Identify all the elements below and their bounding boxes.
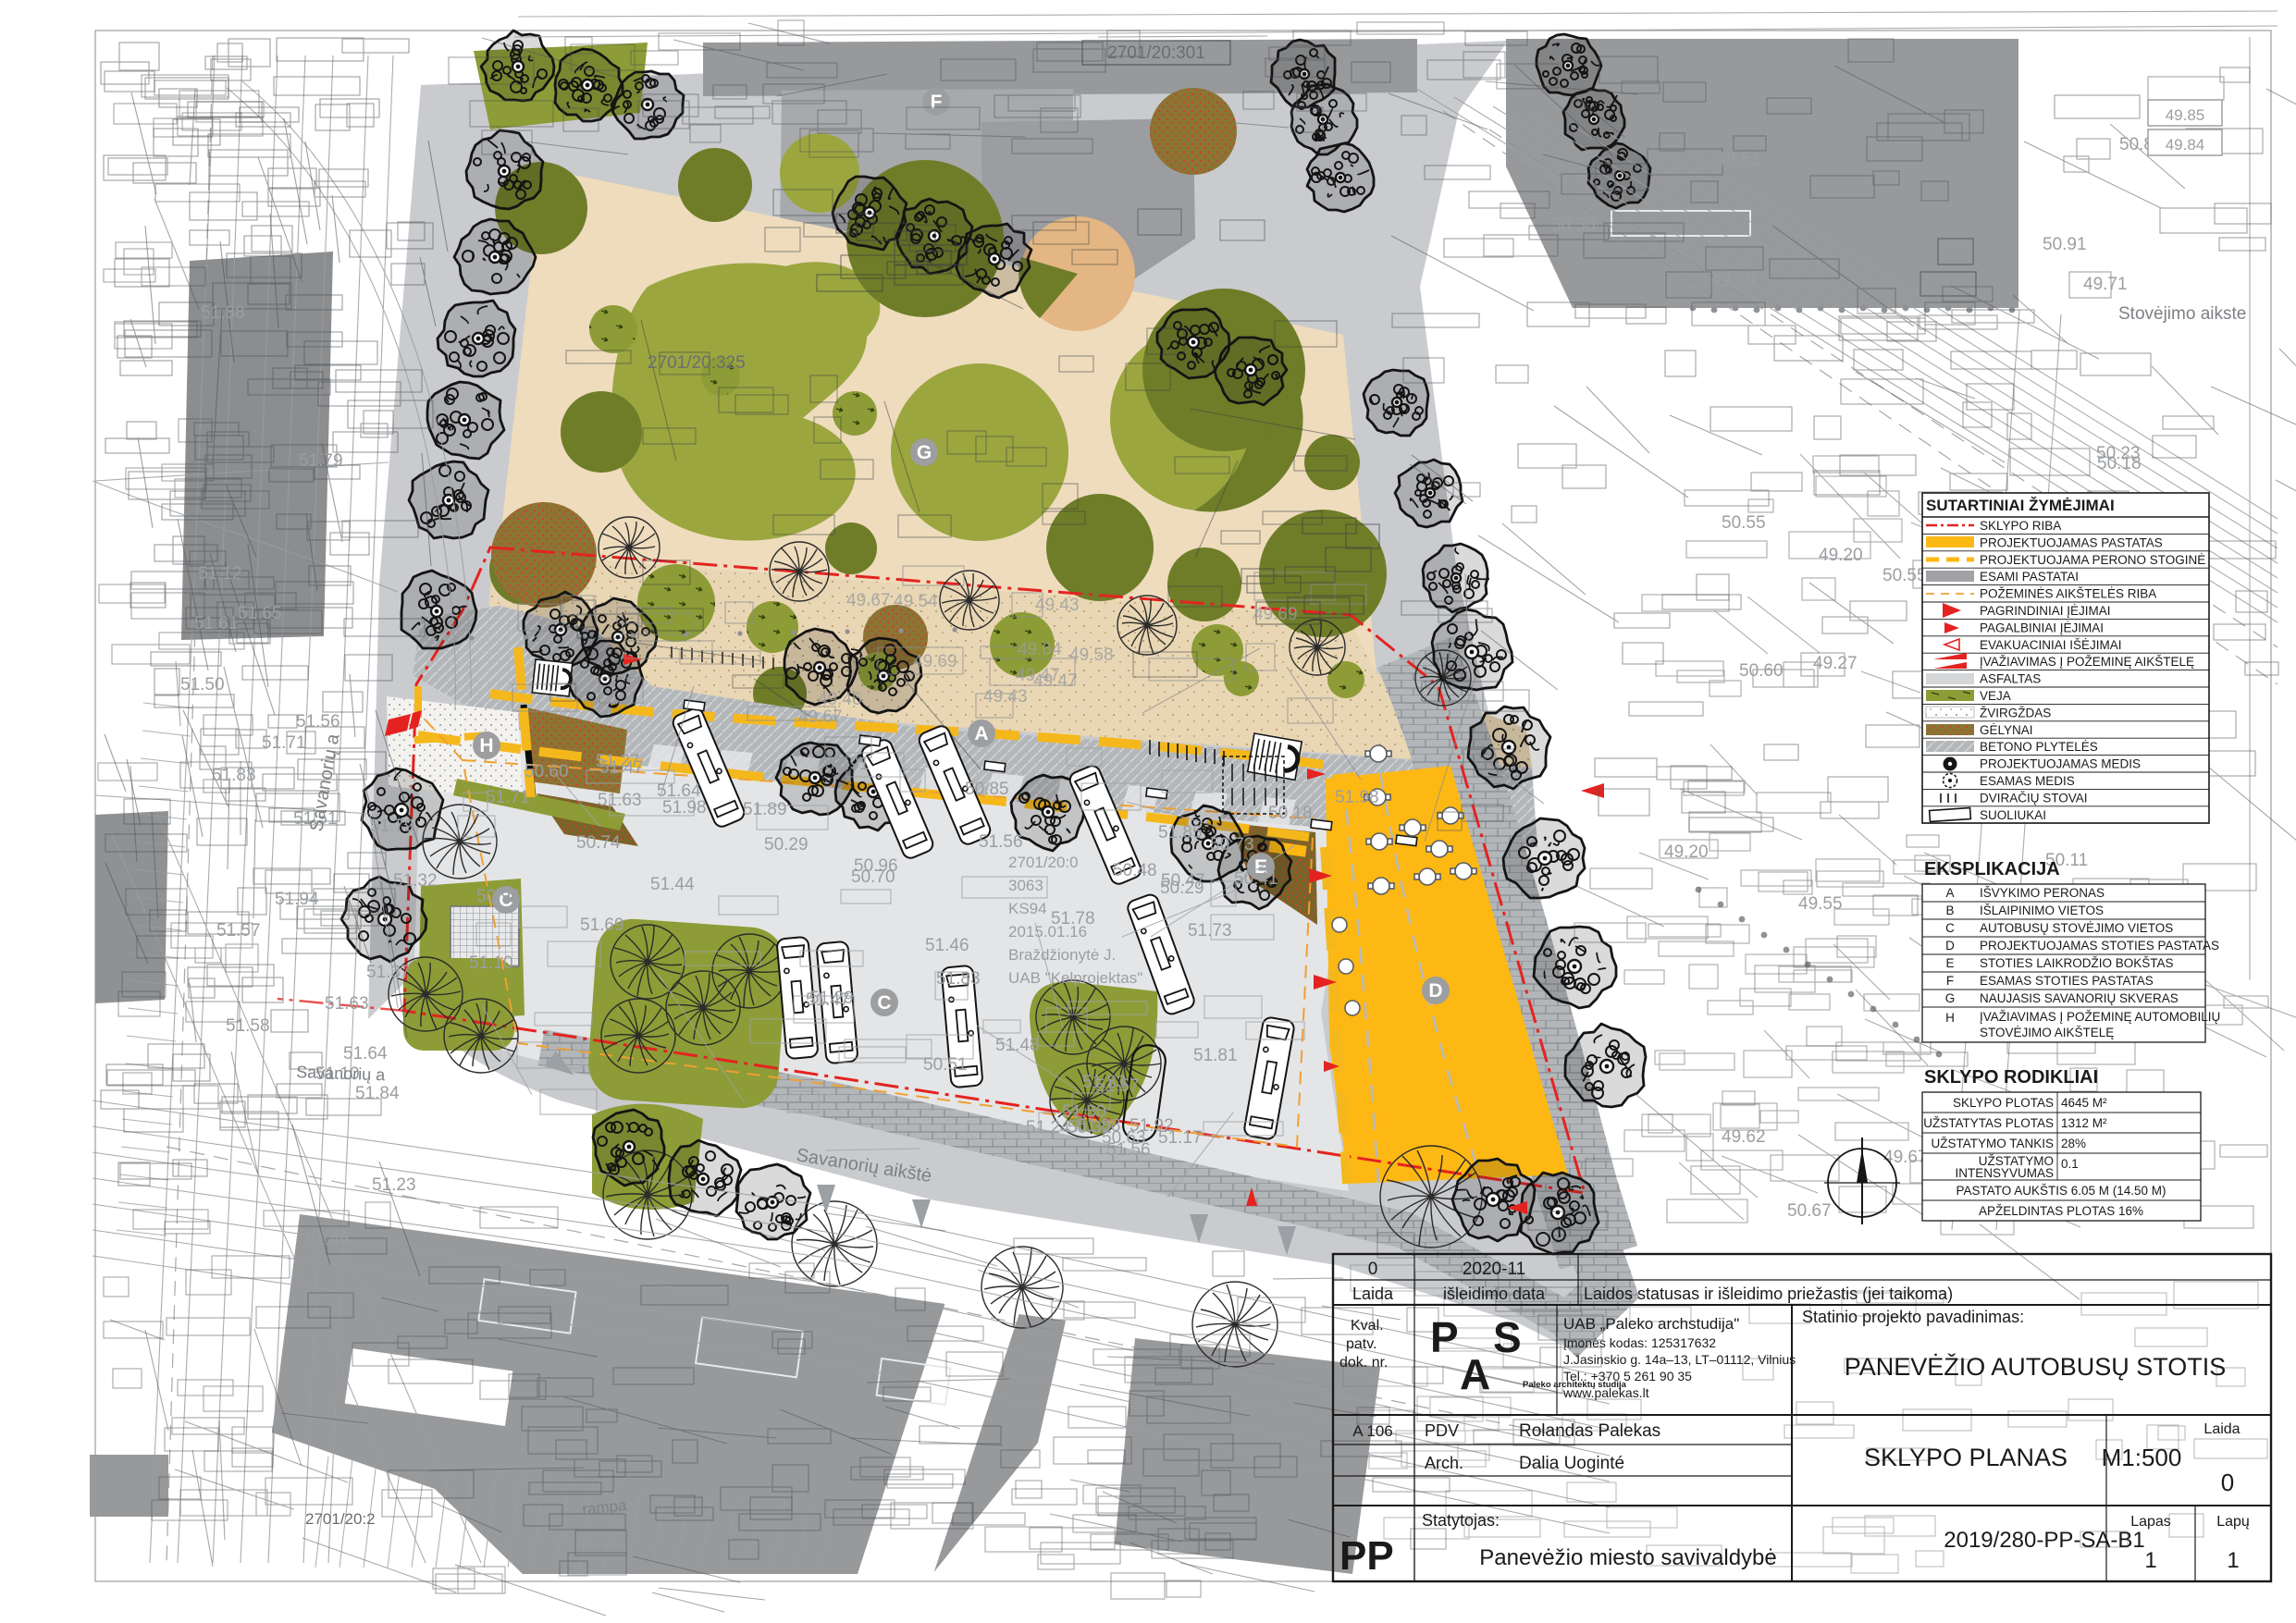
- svg-text:SUOLIUKAI: SUOLIUKAI: [1980, 808, 2046, 822]
- svg-text:PROJEKTUOJAMAS STOTIES PASTATA: PROJEKTUOJAMAS STOTIES PASTATAS: [1980, 939, 2219, 953]
- svg-text:28%: 28%: [2061, 1137, 2086, 1150]
- svg-text:51.98: 51.98: [662, 798, 707, 818]
- svg-text:APŽELDINTAS PLOTAS 16%: APŽELDINTAS PLOTAS 16%: [1979, 1204, 2143, 1218]
- svg-text:PP: PP: [1339, 1533, 1394, 1579]
- svg-text:PAGRINDINIAI ĮĖJIMAI: PAGRINDINIAI ĮĖJIMAI: [1980, 604, 2111, 618]
- svg-text:UŽSTATYTAS PLOTAS: UŽSTATYTAS PLOTAS: [1923, 1116, 2054, 1130]
- svg-text:51.33: 51.33: [1082, 1073, 1127, 1092]
- svg-text:KS94: KS94: [1008, 900, 1047, 917]
- svg-text:UAB "Kelprojektas": UAB "Kelprojektas": [1008, 969, 1142, 987]
- svg-text:49.67: 49.67: [846, 591, 891, 610]
- svg-text:Panevėžio miesto savivaldybė: Panevėžio miesto savivaldybė: [1479, 1545, 1777, 1570]
- svg-text:Laida: Laida: [1352, 1285, 1394, 1303]
- svg-text:E: E: [1945, 956, 1954, 970]
- svg-text:GĖLYNAI: GĖLYNAI: [1980, 723, 2033, 737]
- svg-text:0: 0: [2221, 1469, 2234, 1496]
- svg-text:49.43: 49.43: [1035, 596, 1080, 615]
- svg-text:49.51: 49.51: [1716, 150, 1760, 169]
- svg-text:50.41: 50.41: [1234, 869, 1278, 889]
- svg-text:51.58: 51.58: [226, 1016, 270, 1036]
- svg-text:51.50: 51.50: [180, 675, 225, 695]
- svg-text:49.67: 49.67: [798, 707, 843, 727]
- svg-text:H: H: [1945, 1011, 1955, 1025]
- svg-text:BETONO PLYTELĖS: BETONO PLYTELĖS: [1980, 740, 2098, 754]
- svg-text:PROJEKTUOJAMAS MEDIS: PROJEKTUOJAMAS MEDIS: [1980, 757, 2141, 771]
- svg-text:A: A: [974, 723, 988, 744]
- svg-text:P: P: [1430, 1313, 1459, 1361]
- svg-text:51.56: 51.56: [979, 832, 1023, 852]
- svg-text:49.62: 49.62: [1722, 1127, 1766, 1147]
- svg-text:51.79: 51.79: [299, 451, 343, 471]
- svg-text:2701/20:0: 2701/20:0: [1008, 854, 1079, 871]
- svg-text:2020-11: 2020-11: [1463, 1260, 1525, 1279]
- svg-text:51.71: 51.71: [486, 788, 530, 807]
- svg-text:51.65: 51.65: [238, 604, 282, 623]
- svg-text:50.67: 50.67: [1787, 1201, 1832, 1221]
- svg-text:A 106: A 106: [1352, 1422, 1393, 1440]
- svg-text:ESAMI PASTATAI: ESAMI PASTATAI: [1980, 570, 2079, 584]
- svg-text:51.81: 51.81: [1193, 1046, 1238, 1065]
- svg-text:Stovėjimo aikste: Stovėjimo aikste: [2118, 304, 2246, 324]
- svg-text:50.73: 50.73: [1210, 835, 1254, 855]
- svg-text:51.56: 51.56: [296, 712, 340, 732]
- svg-text:51.61: 51.61: [194, 614, 239, 633]
- svg-text:51.91: 51.91: [825, 755, 870, 774]
- svg-text:50.51: 50.51: [923, 1055, 968, 1075]
- svg-text:3063: 3063: [1008, 877, 1043, 894]
- svg-text:51.56: 51.56: [1106, 1140, 1151, 1160]
- svg-text:patv.: patv.: [1346, 1336, 1377, 1352]
- svg-text:B: B: [1945, 904, 1954, 917]
- svg-text:49.20: 49.20: [1819, 546, 1863, 565]
- svg-text:51.88: 51.88: [1077, 1116, 1121, 1136]
- svg-text:1: 1: [2144, 1548, 2156, 1573]
- svg-text:ĮVAŽIAVIMAS Į POŽEMINĘ AUTOMOB: ĮVAŽIAVIMAS Į POŽEMINĘ AUTOMOBILIŲ: [1980, 1010, 2220, 1024]
- svg-text:SKLYPO PLANAS: SKLYPO PLANAS: [1864, 1444, 2068, 1471]
- svg-text:Lapas: Lapas: [2130, 1514, 2171, 1530]
- svg-text:D: D: [1945, 939, 1955, 953]
- svg-text:49.43: 49.43: [983, 687, 1028, 707]
- svg-text:Statytojas:: Statytojas:: [1422, 1511, 1500, 1530]
- svg-text:C: C: [1945, 921, 1955, 935]
- svg-text:49.27: 49.27: [1813, 654, 1858, 673]
- svg-text:PANEVĖŽIO AUTOBUSŲ STOTIS: PANEVĖŽIO AUTOBUSŲ STOTIS: [1845, 1352, 2227, 1381]
- svg-text:2701/20:2: 2701/20:2: [305, 1510, 376, 1528]
- svg-text:STOVĖJIMO AIKŠTELĘ: STOVĖJIMO AIKŠTELĘ: [1980, 1026, 2114, 1039]
- svg-text:51.83: 51.83: [936, 969, 981, 989]
- svg-text:Tel.: +370 5 261 90 35: Tel.: +370 5 261 90 35: [1563, 1369, 1692, 1383]
- svg-text:51.12: 51.12: [198, 564, 242, 584]
- svg-text:ESAMAS STOTIES PASTATAS: ESAMAS STOTIES PASTATAS: [1980, 974, 2154, 988]
- svg-text:POŽEMINĖS AIKŠTELĖS RIBA: POŽEMINĖS AIKŠTELĖS RIBA: [1980, 587, 2156, 601]
- svg-text:EVAKUACINIAI IŠĖJIMAI: EVAKUACINIAI IŠĖJIMAI: [1980, 638, 2122, 652]
- svg-text:50.70: 50.70: [851, 867, 895, 887]
- svg-text:50.29: 50.29: [1160, 879, 1204, 898]
- svg-text:INTENSYVUMAS: INTENSYVUMAS: [1955, 1166, 2054, 1180]
- svg-text:PAGALBINIAI ĮĖJIMAI: PAGALBINIAI ĮĖJIMAI: [1980, 621, 2104, 634]
- svg-text:51.44: 51.44: [650, 875, 695, 894]
- svg-text:C: C: [877, 992, 891, 1014]
- svg-text:51.37: 51.37: [366, 963, 411, 982]
- svg-text:D: D: [1428, 980, 1442, 1002]
- svg-text:ŽVIRGŽDAS: ŽVIRGŽDAS: [1980, 706, 2051, 719]
- svg-text:51.47: 51.47: [599, 758, 644, 778]
- svg-text:51.83: 51.83: [212, 766, 256, 785]
- svg-text:2015.01.16: 2015.01.16: [1008, 923, 1087, 941]
- svg-text:M1:500: M1:500: [2102, 1444, 2182, 1471]
- svg-text:51.32: 51.32: [393, 871, 438, 891]
- svg-text:F: F: [1946, 974, 1954, 988]
- svg-text:50.91: 50.91: [2043, 235, 2087, 254]
- svg-text:J.Jasinskio g. 14a–13, LT–0111: J.Jasinskio g. 14a–13, LT–01112, Vilnius: [1563, 1352, 1796, 1367]
- svg-text:49.85: 49.85: [2166, 106, 2205, 124]
- svg-text:PROJEKTUOJAMA PERONO STOGINĖ: PROJEKTUOJAMA PERONO STOGINĖ: [1980, 553, 2205, 567]
- svg-text:ASFALTAS: ASFALTAS: [1980, 672, 2041, 686]
- svg-text:51.84: 51.84: [355, 1084, 400, 1103]
- svg-text:Braždžionytė J.: Braždžionytė J.: [1008, 946, 1116, 964]
- svg-text:51.98: 51.98: [1335, 788, 1379, 807]
- svg-text:išleidimo data: išleidimo data: [1443, 1285, 1546, 1303]
- svg-text:50.74: 50.74: [576, 833, 621, 853]
- svg-text:Įmonės kodas: 125317632: Įmonės kodas: 125317632: [1563, 1335, 1716, 1350]
- svg-text:1: 1: [2227, 1548, 2239, 1573]
- svg-text:2701/20:325: 2701/20:325: [648, 353, 746, 373]
- svg-text:2701/20:301: 2701/20:301: [1107, 43, 1205, 63]
- svg-text:50.60: 50.60: [1739, 661, 1784, 681]
- svg-text:51.79: 51.79: [370, 817, 414, 836]
- svg-text:A: A: [1945, 886, 1954, 900]
- svg-text:G: G: [1945, 991, 1956, 1005]
- svg-text:PDV: PDV: [1425, 1421, 1459, 1440]
- svg-text:51.63: 51.63: [325, 994, 369, 1014]
- svg-text:51.94: 51.94: [275, 890, 319, 909]
- svg-text:H: H: [479, 735, 493, 756]
- svg-text:Savanorių a: Savanorių a: [296, 1063, 387, 1084]
- svg-text:50.29: 50.29: [764, 835, 809, 855]
- svg-text:50.60: 50.60: [525, 762, 569, 781]
- svg-text:G: G: [917, 442, 932, 463]
- svg-text:STOTIES LAIKRODŽIO BOKŠTAS: STOTIES LAIKRODŽIO BOKŠTAS: [1980, 956, 2174, 970]
- svg-text:50.55: 50.55: [1722, 513, 1766, 533]
- svg-text:51.71: 51.71: [262, 733, 306, 753]
- svg-text:ESAMAS MEDIS: ESAMAS MEDIS: [1980, 774, 2075, 788]
- svg-text:Kval.: Kval.: [1351, 1318, 1384, 1334]
- svg-text:IŠVYKIMO PERONAS: IŠVYKIMO PERONAS: [1980, 886, 2105, 900]
- svg-text:1312 M²: 1312 M²: [2061, 1116, 2107, 1130]
- svg-text:51.48: 51.48: [995, 1036, 1040, 1055]
- svg-text:50.96: 50.96: [476, 887, 521, 906]
- svg-text:50.48: 50.48: [1113, 861, 1157, 880]
- svg-text:49.64: 49.64: [1018, 640, 1062, 659]
- svg-text:Lapų: Lapų: [2216, 1514, 2250, 1530]
- svg-text:51.23: 51.23: [372, 1175, 416, 1195]
- svg-text:51.47: 51.47: [806, 990, 850, 1010]
- svg-text:NAUJASIS SAVANORIŲ SKVERAS: NAUJASIS SAVANORIŲ SKVERAS: [1980, 991, 2179, 1005]
- svg-text:EKSPLIKACIJA: EKSPLIKACIJA: [1924, 859, 2060, 879]
- svg-text:49.69: 49.69: [913, 652, 957, 671]
- svg-text:AUTOBUSŲ STOVĖJIMO VIETOS: AUTOBUSŲ STOVĖJIMO VIETOS: [1980, 921, 2173, 935]
- svg-text:49.30: 49.30: [1711, 271, 1756, 290]
- svg-text:ĮVAŽIAVIMAS Į POŽEMINĘ AIKŠTEL: ĮVAŽIAVIMAS Į POŽEMINĘ AIKŠTELĘ: [1980, 655, 2194, 669]
- svg-text:www.palekas.lt: www.palekas.lt: [1562, 1385, 1649, 1400]
- svg-text:SKLYPO RIBA: SKLYPO RIBA: [1980, 519, 2061, 533]
- svg-text:DVIRAČIŲ STOVAI: DVIRAČIŲ STOVAI: [1980, 791, 2088, 805]
- svg-text:49.46: 49.46: [818, 690, 862, 709]
- svg-text:UAB „Paleko archstudija": UAB „Paleko archstudija": [1563, 1315, 1739, 1333]
- svg-text:49.20: 49.20: [1664, 842, 1709, 862]
- svg-text:51.46: 51.46: [925, 936, 969, 955]
- svg-text:Rolandas Palekas: Rolandas Palekas: [1519, 1421, 1660, 1441]
- svg-text:PASTATO AUKŠTIS 6.05 M (14.50: PASTATO AUKŠTIS 6.05 M (14.50 M): [1956, 1184, 2166, 1198]
- svg-text:49.69: 49.69: [1253, 605, 1298, 624]
- svg-text:49.58: 49.58: [1069, 646, 1114, 665]
- svg-text:4645 M²: 4645 M²: [2061, 1096, 2107, 1110]
- svg-text:51.69: 51.69: [580, 916, 624, 935]
- svg-text:2019/280-PP-SA-B1: 2019/280-PP-SA-B1: [1944, 1528, 2144, 1553]
- svg-text:51.89: 51.89: [743, 800, 787, 819]
- svg-text:0: 0: [1368, 1260, 1378, 1279]
- svg-text:49.84: 49.84: [2166, 136, 2205, 154]
- svg-text:IŠLAIPINIMO VIETOS: IŠLAIPINIMO VIETOS: [1980, 904, 2104, 917]
- svg-text:PROJEKTUOJAMAS PASTATAS: PROJEKTUOJAMAS PASTATAS: [1980, 535, 2163, 549]
- svg-text:50.85: 50.85: [965, 780, 1009, 799]
- svg-text:dok. nr.: dok. nr.: [1339, 1355, 1388, 1371]
- svg-text:51.10: 51.10: [469, 953, 513, 973]
- svg-text:Statinio projekto pavadinimas:: Statinio projekto pavadinimas:: [1802, 1308, 2024, 1326]
- svg-text:51.64: 51.64: [343, 1044, 388, 1064]
- svg-text:51.64: 51.64: [657, 781, 701, 801]
- svg-text:51.63: 51.63: [598, 791, 642, 810]
- svg-text:A: A: [1460, 1350, 1490, 1398]
- svg-text:50.18: 50.18: [1268, 804, 1313, 823]
- svg-text:Dalia Uoginté: Dalia Uoginté: [1519, 1454, 1624, 1473]
- svg-text:Arch.: Arch.: [1425, 1454, 1463, 1472]
- svg-text:SUTARTINIAI ŽYMĖJIMAI: SUTARTINIAI ŽYMĖJIMAI: [1926, 497, 2115, 514]
- svg-text:51.85: 51.85: [1158, 823, 1203, 842]
- svg-text:51.57: 51.57: [216, 921, 261, 941]
- svg-text:Laida: Laida: [2203, 1421, 2240, 1437]
- svg-text:0.1: 0.1: [2061, 1157, 2079, 1171]
- svg-text:Laidos statusas ir išleidimo p: Laidos statusas ir išleidimo priežastis …: [1584, 1285, 1953, 1303]
- svg-text:49.71: 49.71: [2083, 275, 2128, 294]
- svg-text:VEJA: VEJA: [1980, 689, 2011, 703]
- svg-text:50.50: 50.50: [1551, 215, 1596, 235]
- svg-text:51.73: 51.73: [1188, 921, 1232, 941]
- svg-text:51.45: 51.45: [305, 1230, 350, 1249]
- svg-text:49.47: 49.47: [1033, 671, 1078, 691]
- svg-text:49.55: 49.55: [1798, 894, 1843, 914]
- svg-text:49.54: 49.54: [894, 592, 938, 611]
- svg-text:UŽSTATYMO TANKIS: UŽSTATYMO TANKIS: [1931, 1137, 2054, 1150]
- svg-text:50.55: 50.55: [1882, 566, 1927, 585]
- svg-text:F: F: [931, 92, 943, 113]
- svg-text:51.88: 51.88: [201, 303, 245, 323]
- svg-text:50.18: 50.18: [2097, 454, 2142, 473]
- svg-text:S: S: [1493, 1313, 1522, 1361]
- svg-text:SKLYPO RODIKLIAI: SKLYPO RODIKLIAI: [1924, 1067, 2098, 1088]
- svg-text:SKLYPO PLOTAS: SKLYPO PLOTAS: [1953, 1096, 2054, 1110]
